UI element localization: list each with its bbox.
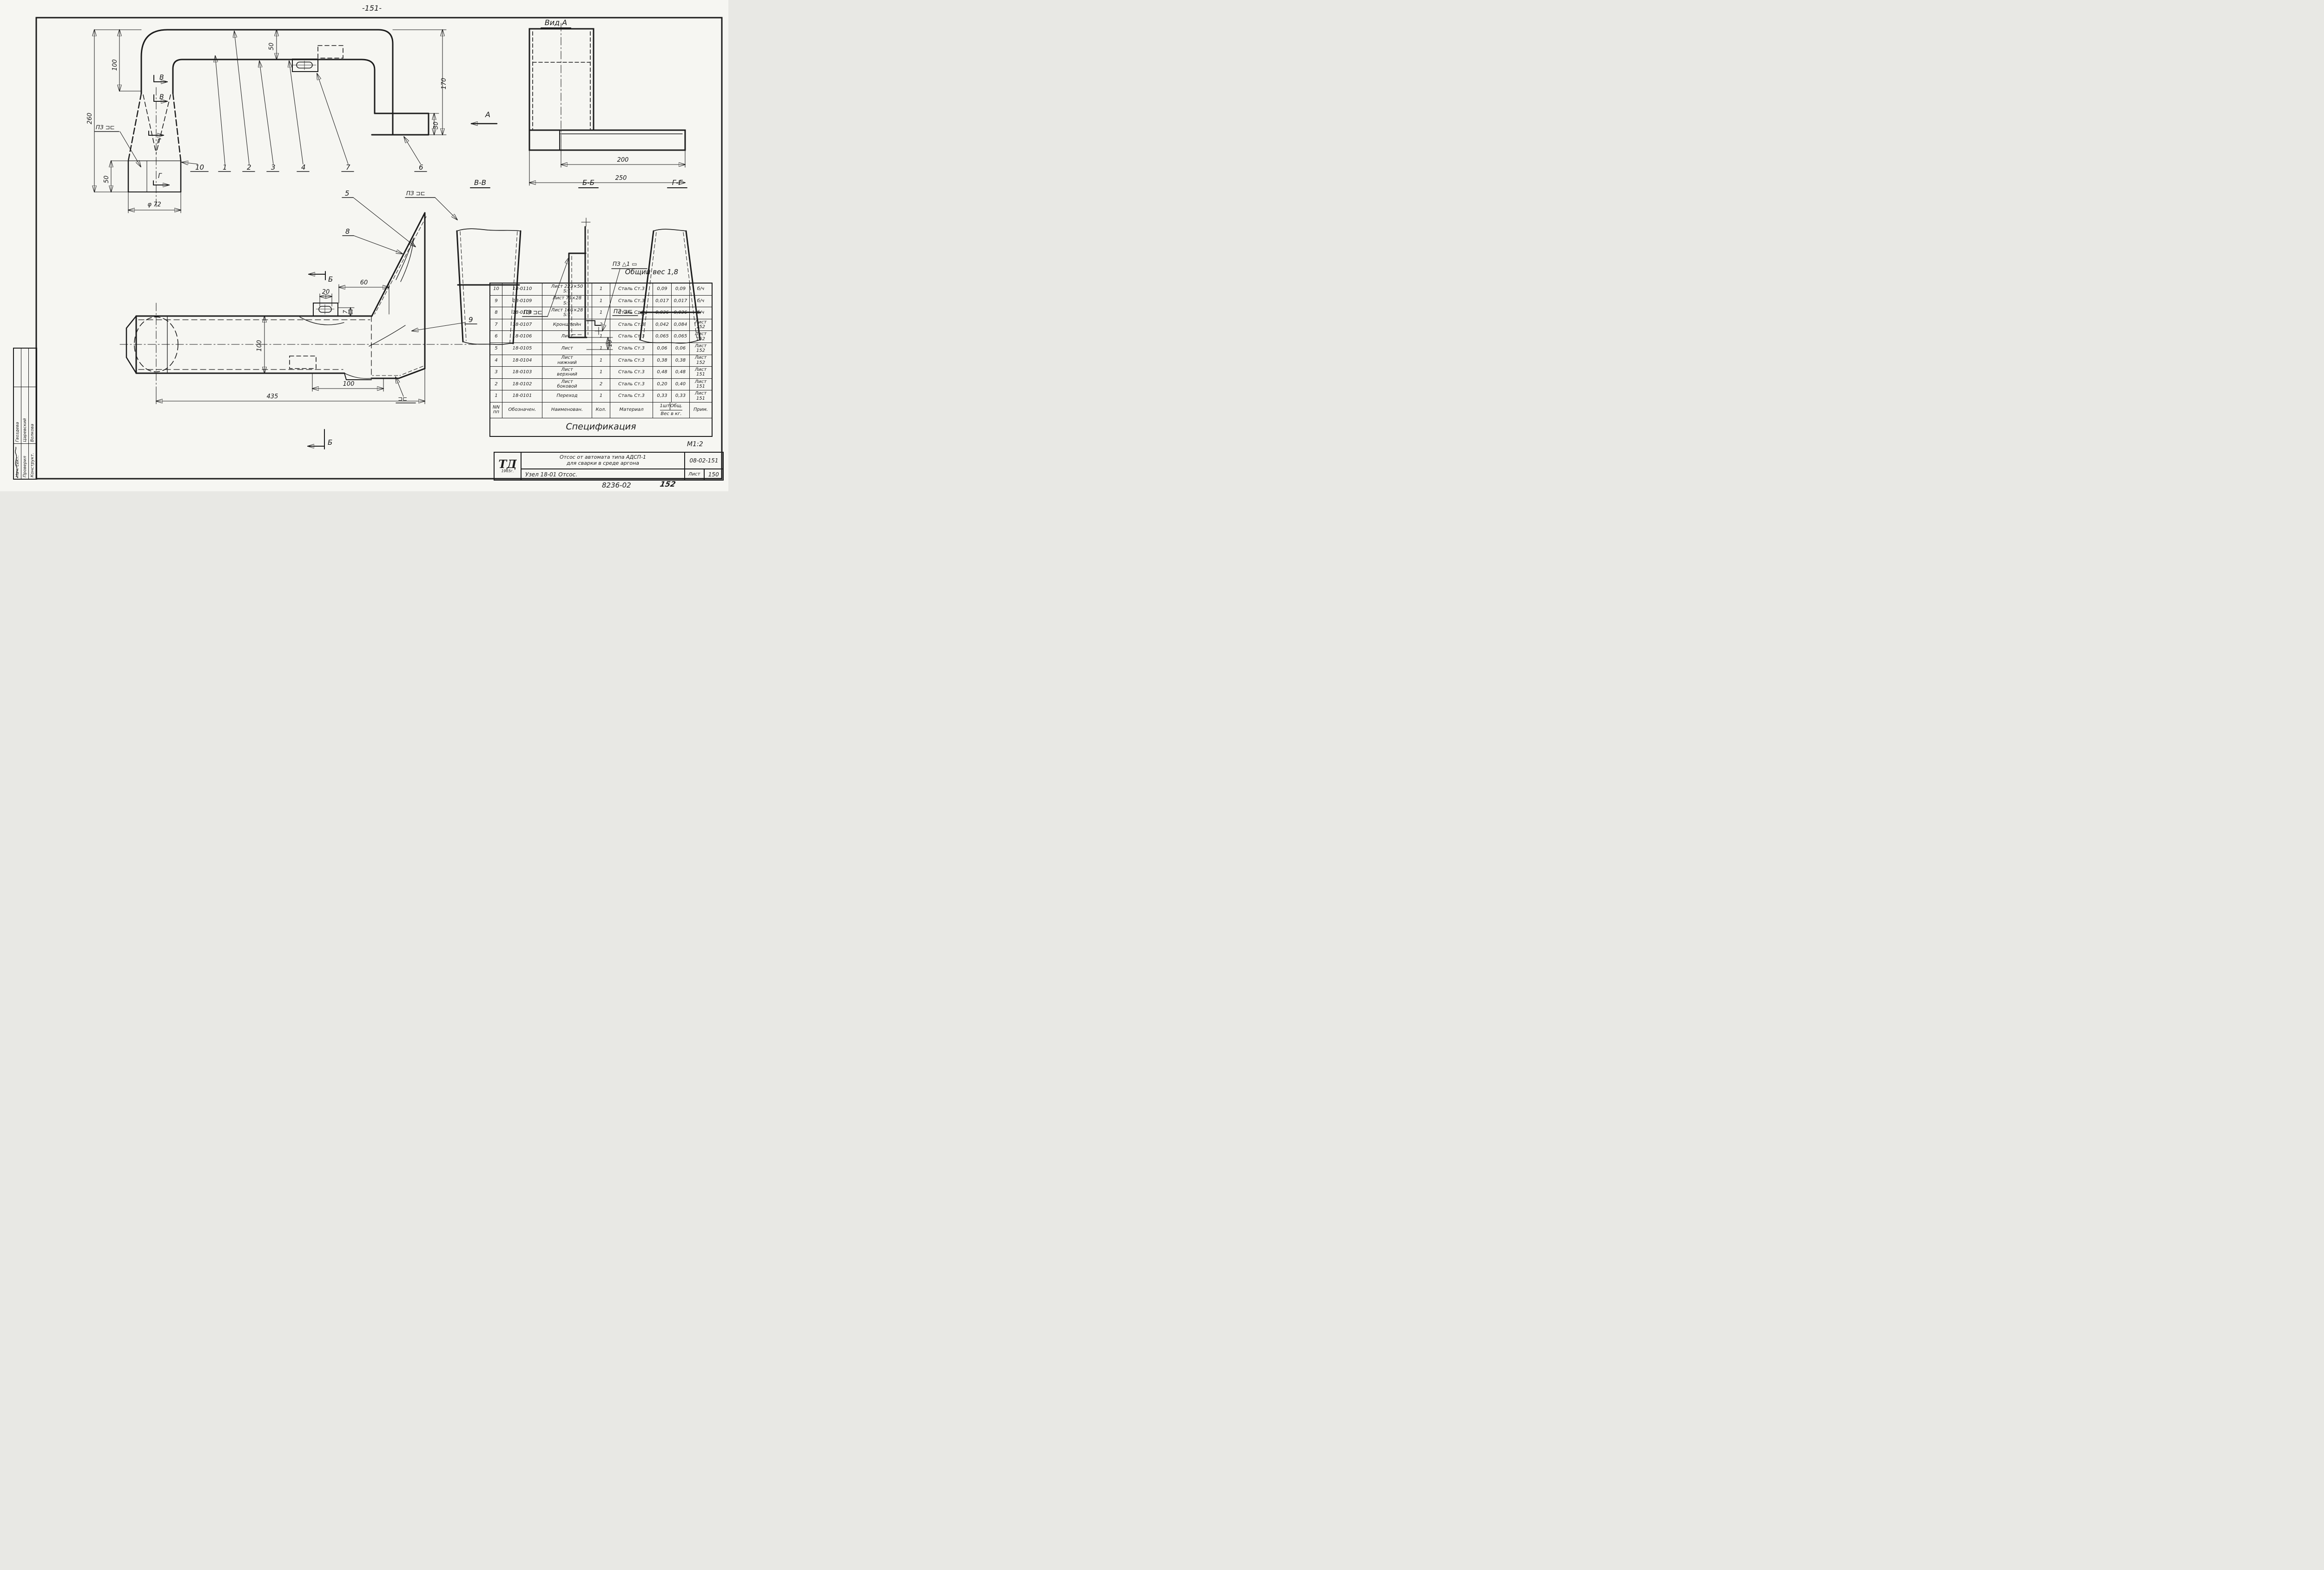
spec-cell-qty: 1 <box>592 296 610 308</box>
spec-cell-designation: 18-0102 <box>502 379 542 391</box>
section-arrow-g-lower: Г <box>158 172 162 180</box>
spec-cell-weight-total: 0,38 <box>672 355 690 367</box>
spec-cell-weight-each: 0,042 <box>653 319 672 331</box>
dim-170: 170 <box>441 78 448 90</box>
signature-squiggle <box>14 446 20 479</box>
section-bb-label: Б-Б <box>582 178 594 187</box>
spec-cell-name: Лист 223×50 S:1 <box>542 284 592 296</box>
callout-5: 5 <box>345 189 350 198</box>
section-arrow-v-lower: В <box>159 93 164 101</box>
section-arrows-b: Б Б <box>308 271 333 449</box>
dim-260: 260 <box>86 113 93 125</box>
spec-cell-weight-total: 0,40 <box>672 379 690 391</box>
spec-table-row: 3 18-0103 Лист верхний 1 Сталь Ст.3 0,48… <box>490 367 712 379</box>
upper-view-callouts: 10 1 2 3 4 7 6 <box>182 31 427 172</box>
view-direction-a-letter: А <box>485 110 490 119</box>
title-block-sheet: Лист 150 <box>684 469 723 480</box>
spec-cell-num: 6 <box>490 331 502 343</box>
spec-cell-qty: 2 <box>592 379 610 391</box>
spec-cell-weight-total: 0,065 <box>672 331 690 343</box>
spec-table-row: 10 18-0110 Лист 223×50 S:1 1 Сталь Ст.3 … <box>490 284 712 296</box>
section-arrows-v-g: В В Г Г <box>149 74 169 185</box>
stamp-row: Конструкт. Волкова <box>29 349 36 479</box>
spec-cell-designation: 18-0110 <box>502 284 542 296</box>
spec-header-name: Наименован. <box>542 402 592 418</box>
title-line-2: для сварки в среде аргона <box>567 461 639 467</box>
stamp-role: Конструкт. <box>29 443 36 479</box>
spec-cell-note: Лист 152 <box>690 319 712 331</box>
spec-cell-qty: 1 <box>592 367 610 379</box>
spec-cell-qty: 1 <box>592 331 610 343</box>
spec-header-qty: Кол. <box>592 402 610 418</box>
spec-table-row: 1 18-0101 Переход 1 Сталь Ст.3 0,33 0,33… <box>490 390 712 402</box>
spec-cell-designation: 18-0104 <box>502 355 542 367</box>
spec-cell-weight-each: 0,48 <box>653 367 672 379</box>
spec-cell-weight-total: 0,06 <box>672 343 690 355</box>
spec-cell-num: 8 <box>490 307 502 319</box>
spec-cell-weight-total: 0,017 <box>672 296 690 308</box>
spec-cell-weight-total: 0,084 <box>672 319 690 331</box>
spec-table-row: 2 18-0102 Лист боковой 2 Сталь Ст.3 0,20… <box>490 379 712 391</box>
scale-note: М1:2 <box>687 441 703 448</box>
callout-9: 9 <box>469 316 473 324</box>
spec-cell-name: Лист 79×28 S:1 <box>542 296 592 308</box>
spec-cell-material: Сталь Ст.3 <box>610 343 653 355</box>
spec-cell-name: Лист боковой <box>542 379 592 391</box>
callout-7: 7 <box>346 163 350 172</box>
title-line-1: Отсос от автомата типа АДСП-1 <box>560 455 646 461</box>
callout-3: 3 <box>271 163 276 172</box>
specification-table: 10 18-0110 Лист 223×50 S:1 1 Сталь Ст.3 … <box>489 283 713 437</box>
section-vv-label: В-В <box>474 178 486 187</box>
spec-table-row: 9 18-0109 Лист 79×28 S:1 1 Сталь Ст.3 0,… <box>490 296 712 308</box>
dim-100-lower: 100 <box>343 381 355 388</box>
spec-cell-note: Лист 152 <box>690 355 712 367</box>
stamp-signature <box>21 349 28 387</box>
spec-cell-note: Лист 152 <box>690 331 712 343</box>
callout-8: 8 <box>345 227 350 236</box>
spec-table-title: Спецификация <box>490 418 712 436</box>
spec-title-text: Спецификация <box>565 422 636 432</box>
spec-cell-num: 10 <box>490 284 502 296</box>
spec-cell-designation: 18-0106 <box>502 331 542 343</box>
spec-cell-name: Лист 166×28 S:1 <box>542 307 592 319</box>
dim-30: 30 <box>433 122 440 130</box>
spec-cell-material: Сталь Ст.3 <box>610 319 653 331</box>
stamp-name: Царевский <box>21 387 28 443</box>
section-arrow-v-upper: В <box>159 74 164 81</box>
stamp-name: Волкова <box>29 387 36 443</box>
dim-50-funnel: 50 <box>103 176 110 184</box>
spec-cell-qty: 1 <box>592 307 610 319</box>
dim-100-duct: 100 <box>256 340 263 352</box>
spec-cell-num: 2 <box>490 379 502 391</box>
spec-cell-weight-each: 0,09 <box>653 284 672 296</box>
approval-stamp: Нач. сект. Гвоздева Проверил Царевский <box>13 348 37 480</box>
title-block-logo: ТД 1965г. <box>495 453 522 480</box>
lower-view <box>120 213 478 387</box>
bottom-sheet-number: 152 <box>659 480 676 488</box>
drawing-sheet: -151- <box>0 0 728 491</box>
spec-cell-note: Лист 152 <box>690 343 712 355</box>
spec-cell-qty: 1 <box>592 343 610 355</box>
spec-cell-name: Лист <box>542 343 592 355</box>
weld-label-triangle: ПЗ △1 ▭ <box>613 261 637 267</box>
spec-cell-designation: 18-0103 <box>502 367 542 379</box>
view-a: Вид А 200 250 <box>529 18 685 185</box>
spec-cell-material: Сталь Ст.3 <box>610 331 653 343</box>
stamp-signature <box>14 349 21 387</box>
spec-cell-designation: 18-0108 <box>502 307 542 319</box>
dim-20: 20 <box>322 289 330 296</box>
callout-2: 2 <box>247 163 251 172</box>
view-direction-a: А <box>471 110 497 124</box>
spec-cell-name: Переход <box>542 390 592 402</box>
spec-cell-weight-each: 0,036 <box>653 307 672 319</box>
spec-cell-material: Сталь Ст.3 <box>610 296 653 308</box>
dim-250: 250 <box>615 175 627 182</box>
spec-header-note: Прим. <box>690 402 712 418</box>
spec-cell-weight-each: 0,065 <box>653 331 672 343</box>
callout-4: 4 <box>301 163 306 172</box>
title-block: ТД 1965г. Отсос от автомата типа АДСП-1 … <box>494 452 724 481</box>
dim-435: 435 <box>267 393 278 400</box>
spec-header-weight-group: 1шт Общ. Вес в кг. <box>653 402 690 418</box>
title-block-doc-number: 08-02-151 <box>684 453 723 469</box>
section-arrow-b-upper: Б <box>328 275 333 284</box>
spec-cell-note: Лист 151 <box>690 367 712 379</box>
spec-cell-weight-total: 0,036 <box>672 307 690 319</box>
spec-cell-material: Сталь Ст.3 <box>610 390 653 402</box>
section-arrow-g-upper: Г <box>157 138 161 145</box>
section-gg-label: Г-Г <box>672 178 683 187</box>
spec-cell-qty: 1 <box>592 284 610 296</box>
logo-text: ТД <box>498 459 516 469</box>
weld-label-funnel: ПЗ ⊐⊏ <box>96 124 115 131</box>
title-block-title: Отсос от автомата типа АДСП-1 для сварки… <box>522 453 684 469</box>
spec-cell-num: 1 <box>490 390 502 402</box>
spec-cell-note: б/ч <box>690 284 712 296</box>
spec-cell-num: 4 <box>490 355 502 367</box>
spec-cell-material: Сталь Ст.3 <box>610 379 653 391</box>
sheet-number: 150 <box>705 469 723 480</box>
spec-cell-num: 7 <box>490 319 502 331</box>
total-weight-note: Общий вес 1,8 <box>625 268 678 276</box>
spec-cell-designation: 18-0101 <box>502 390 542 402</box>
logo-year: 1965г. <box>501 469 514 473</box>
spec-cell-note: Лист 151 <box>690 390 712 402</box>
spec-cell-weight-each: 0,017 <box>653 296 672 308</box>
spec-header-designation: Обозначен. <box>502 402 542 418</box>
view-a-label: Вид А <box>545 18 567 27</box>
spec-cell-name: Лист верхний <box>542 367 592 379</box>
spec-cell-weight-each: 0,06 <box>653 343 672 355</box>
lower-view-callouts: 5 8 9 ⊐⊏ <box>342 189 477 403</box>
callout-10: 10 <box>195 163 204 172</box>
spec-cell-weight-each: 0,38 <box>653 355 672 367</box>
spec-cell-weight-each: 0,20 <box>653 379 672 391</box>
dim-60: 60 <box>360 279 368 286</box>
spec-table-row: 8 18-0108 Лист 166×28 S:1 1 Сталь Ст.3 0… <box>490 307 712 319</box>
dim-phi72: φ 72 <box>147 201 161 208</box>
sheet-label: Лист <box>685 469 705 480</box>
spec-cell-num: 5 <box>490 343 502 355</box>
spec-cell-weight-each: 0,33 <box>653 390 672 402</box>
spec-cell-note: б/ч <box>690 296 712 308</box>
spec-table-header: NN пп Обозначен. Наименован. Кол. Матери… <box>490 402 712 418</box>
spec-cell-qty: 1 <box>592 355 610 367</box>
stamp-role: Проверил <box>21 443 28 479</box>
spec-table-row: 6 18-0106 Лист 1 Сталь Ст.3 0,065 0,065 … <box>490 331 712 343</box>
dim-50-upper: 50 <box>268 43 275 51</box>
spec-header-weight-each: 1шт <box>660 402 670 410</box>
section-arrow-b-lower: Б <box>328 438 332 447</box>
lower-view-dimensions: 60 20 7 100 100 435 <box>156 279 425 404</box>
upper-view <box>128 30 429 208</box>
spec-cell-material: Сталь Ст.3 <box>610 284 653 296</box>
dim-7: 7 <box>342 310 349 314</box>
spec-cell-designation: 18-0107 <box>502 319 542 331</box>
spec-cell-num: 3 <box>490 367 502 379</box>
spec-cell-material: Сталь Ст.3 <box>610 367 653 379</box>
spec-cell-weight-total: 0,09 <box>672 284 690 296</box>
spec-header-weight-label: Вес в кг. <box>660 410 681 418</box>
stamp-name: Гвоздева <box>14 387 21 443</box>
spec-cell-name: Лист нижний <box>542 355 592 367</box>
dim-100: 100 <box>112 59 119 71</box>
weld-label-vv: ПЗ ⊐⊏ <box>406 190 425 197</box>
spec-header-material: Материал <box>610 402 653 418</box>
spec-cell-material: Сталь Ст.3 <box>610 307 653 319</box>
spec-cell-qty: 2 <box>592 319 610 331</box>
spec-cell-weight-total: 0,33 <box>672 390 690 402</box>
spec-header-weight-total: Общ. <box>670 402 683 410</box>
spec-cell-num: 9 <box>490 296 502 308</box>
spec-cell-designation: 18-0105 <box>502 343 542 355</box>
spec-table-row: 7 18-0107 Кронштейн 2 Сталь Ст.3 0,042 0… <box>490 319 712 331</box>
spec-table-row: 5 18-0105 Лист 1 Сталь Ст.3 0,06 0,06 Ли… <box>490 343 712 355</box>
dim-200: 200 <box>617 157 629 164</box>
weld-label-lower: ⊐⊏ <box>398 396 407 402</box>
spec-cell-qty: 1 <box>592 390 610 402</box>
spec-cell-name: Лист <box>542 331 592 343</box>
bottom-code: 8236-02 <box>602 481 631 489</box>
spec-cell-material: Сталь Ст.3 <box>610 355 653 367</box>
stamp-signature <box>29 349 36 387</box>
spec-table-row: 4 18-0104 Лист нижний 1 Сталь Ст.3 0,38 … <box>490 355 712 367</box>
spec-cell-weight-total: 0,48 <box>672 367 690 379</box>
title-block-node: Узел 18-01 Отсос. <box>522 469 684 480</box>
spec-cell-designation: 18-0109 <box>502 296 542 308</box>
spec-cell-note: б/ч <box>690 307 712 319</box>
spec-header-num: NN пп <box>490 402 502 418</box>
callout-1: 1 <box>223 163 227 172</box>
spec-cell-note: Лист 151 <box>690 379 712 391</box>
stamp-row: Проверил Царевский <box>21 349 29 479</box>
spec-cell-name: Кронштейн <box>542 319 592 331</box>
callout-6: 6 <box>419 163 423 172</box>
